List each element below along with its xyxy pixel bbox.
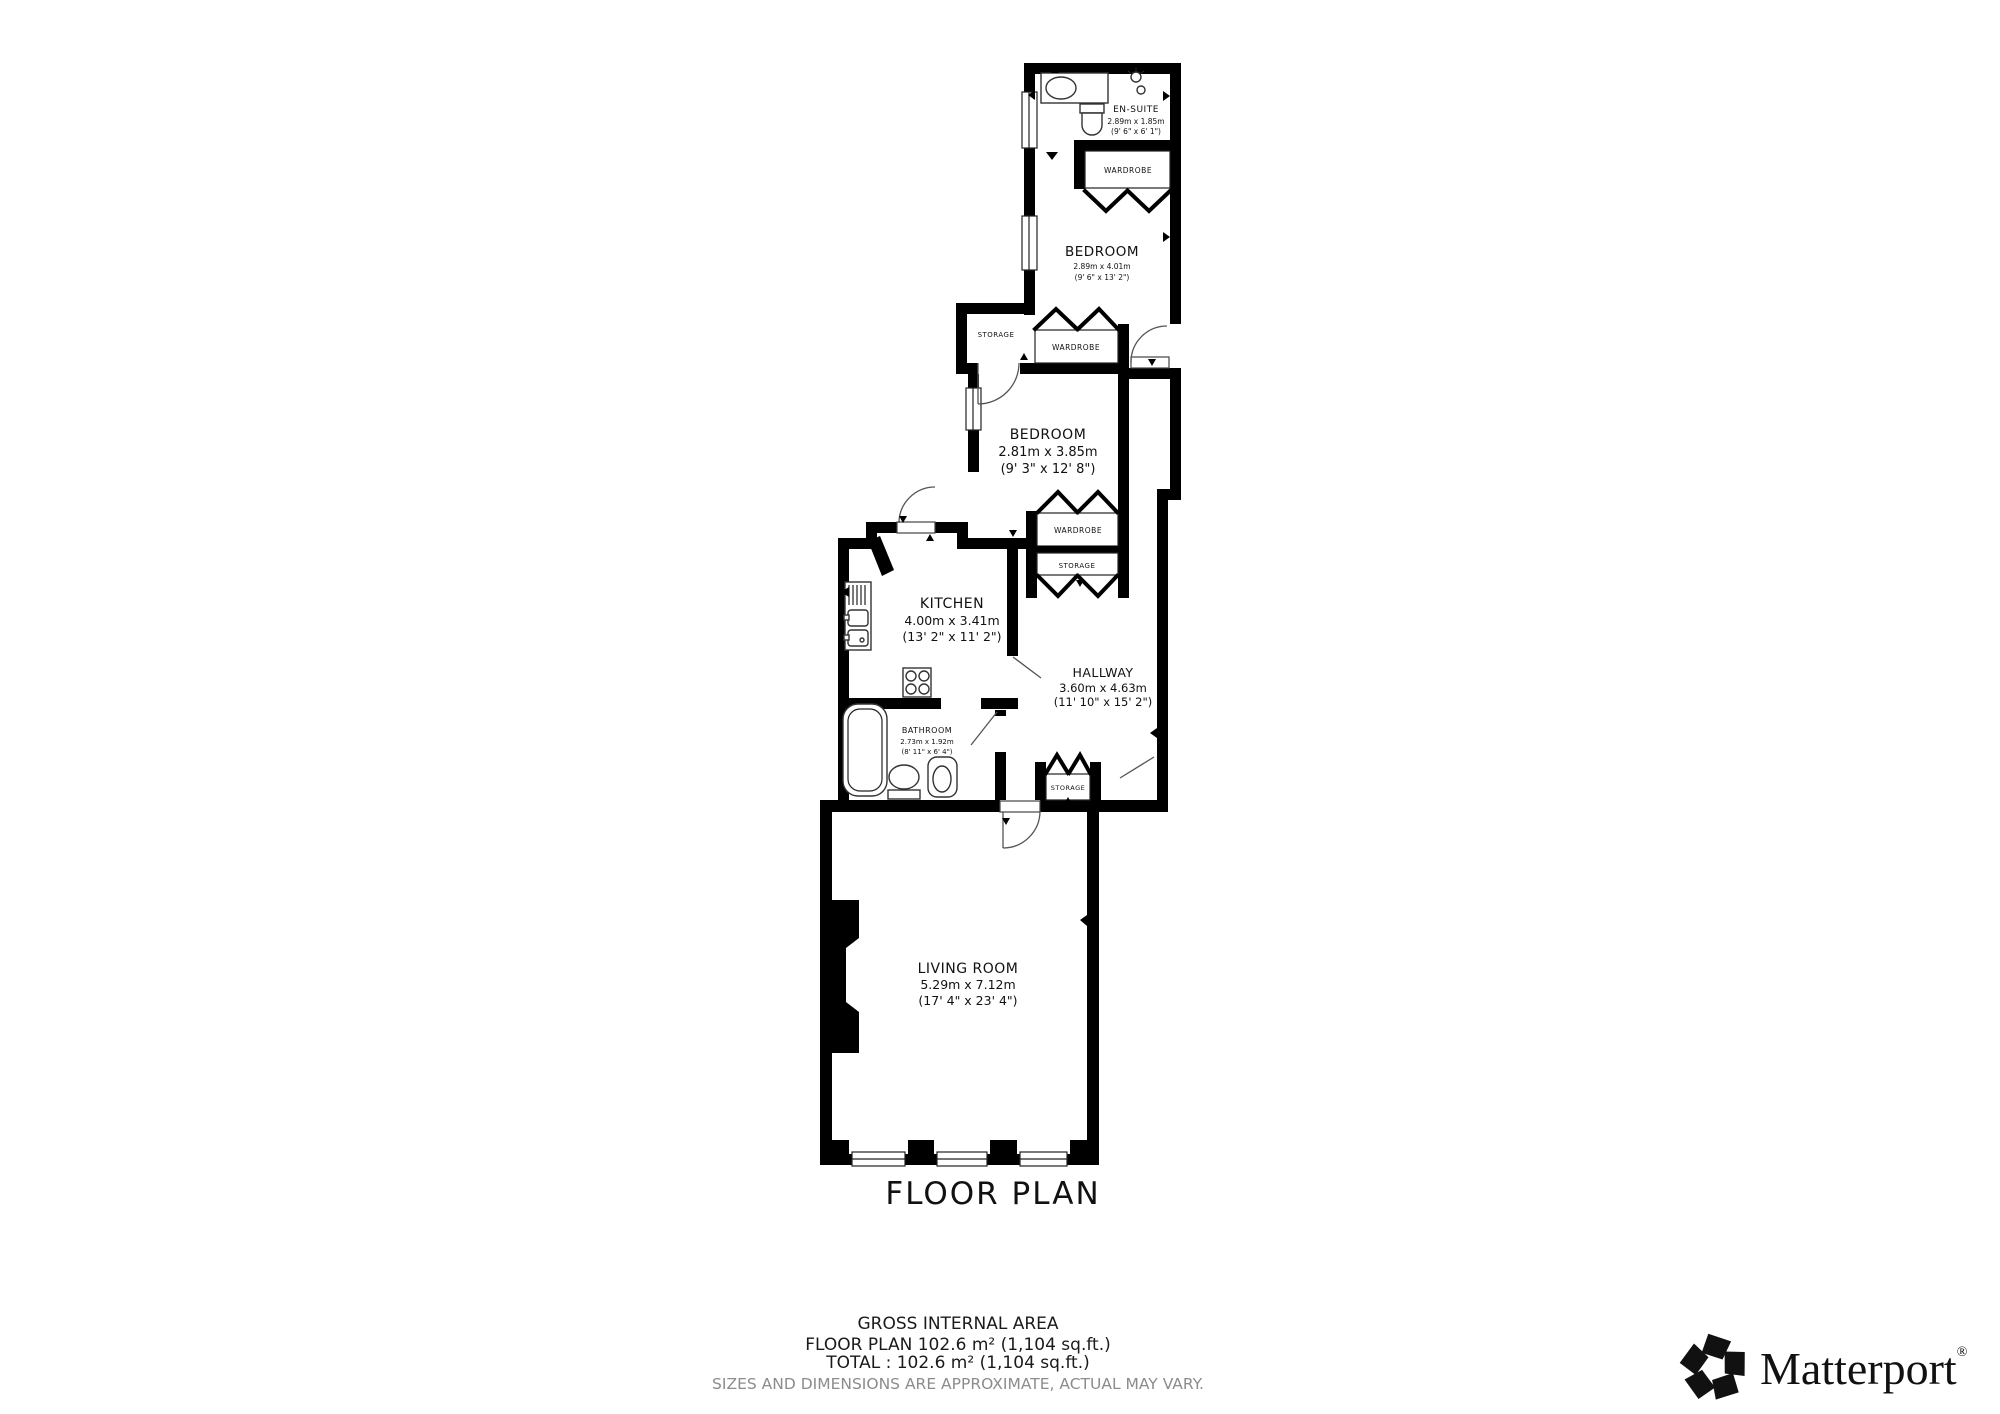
ensuite-imperial: (9' 6" x 6' 1"): [1111, 127, 1161, 136]
bathroom-toilet-icon: [889, 765, 919, 789]
window-bedroom-mid: [966, 388, 981, 430]
living-room-label: LIVING ROOM: [918, 961, 1019, 977]
living-room-metric: 5.29m x 7.12m: [920, 977, 1015, 992]
hallway-imperial: (11' 10" x 15' 2"): [1054, 695, 1153, 709]
storage-lower-label: STORAGE: [1059, 562, 1096, 570]
bedroom-top-metric: 2.89m x 4.01m: [1073, 262, 1130, 271]
kitchen-sink-1: [848, 610, 868, 626]
total-area-line: TOTAL : 102.6 m² (1,104 sq.ft.): [826, 1353, 1089, 1373]
registered-mark: ®: [1957, 1345, 1968, 1360]
storage-hall-label: STORAGE: [1051, 784, 1085, 792]
kitchen-imperial: (13' 2" x 11' 2"): [902, 629, 1001, 644]
bedroom-mid-label: BEDROOM: [1010, 427, 1087, 443]
bathroom-label: BATHROOM: [902, 726, 952, 735]
storage-upper-label: STORAGE: [978, 331, 1015, 339]
bathroom-imperial: (8' 11" x 6' 4"): [901, 748, 952, 756]
wardrobe-ensuite-label: WARDROBE: [1104, 166, 1152, 175]
matterport-pinwheel-logo-icon: [1676, 1330, 1752, 1406]
gross-internal-area-heading: GROSS INTERNAL AREA: [857, 1314, 1058, 1334]
wardrobe-lower-label: WARDROBE: [1054, 526, 1102, 535]
bedroom-top-imperial: (9' 6" x 13' 2"): [1075, 273, 1130, 282]
disclaimer-line: SIZES AND DIMENSIONS ARE APPROXIMATE, AC…: [712, 1375, 1204, 1393]
window-living-2: [937, 1152, 987, 1166]
matterport-wordmark: Matterport®: [1760, 1342, 1967, 1395]
bedroom-mid-metric: 2.81m x 3.85m: [998, 445, 1097, 460]
wardrobe-mid-label: WARDROBE: [1052, 343, 1100, 352]
window-bedroom-top-2: [1022, 216, 1037, 270]
bathtub-icon: [843, 704, 887, 796]
kitchen-sink-2: [848, 630, 868, 646]
window-bedroom-top-1: [1022, 92, 1037, 148]
ensuite-label: EN-SUITE: [1113, 105, 1159, 115]
bedroom-top-label: BEDROOM: [1065, 244, 1139, 260]
bedroom-mid-imperial: (9' 3" x 12' 8"): [1001, 462, 1096, 477]
ensuite-toilet-tank: [1080, 104, 1104, 113]
window-living-1: [852, 1152, 905, 1166]
ensuite-metric: 2.89m x 1.85m: [1107, 117, 1164, 126]
floor-plan-title: FLOOR PLAN: [885, 1176, 1100, 1212]
kitchen-label: KITCHEN: [920, 596, 984, 612]
hallway-metric: 3.60m x 4.63m: [1059, 681, 1147, 695]
ensuite-sink-icon: [1046, 77, 1076, 99]
ensuite-toilet-icon: [1082, 113, 1102, 135]
living-room-imperial: (17' 4" x 23' 4"): [918, 993, 1017, 1008]
floor-plan-page: EN-SUITE 2.89m x 1.85m (9' 6" x 6' 1") B…: [0, 0, 2000, 1414]
floor-plan-area-line: FLOOR PLAN 102.6 m² (1,104 sq.ft.): [805, 1335, 1110, 1355]
hallway-label: HALLWAY: [1072, 665, 1133, 680]
bathroom-metric: 2.73m x 1.92m: [900, 738, 954, 746]
window-living-3: [1020, 1152, 1067, 1166]
kitchen-metric: 4.00m x 3.41m: [904, 613, 999, 628]
